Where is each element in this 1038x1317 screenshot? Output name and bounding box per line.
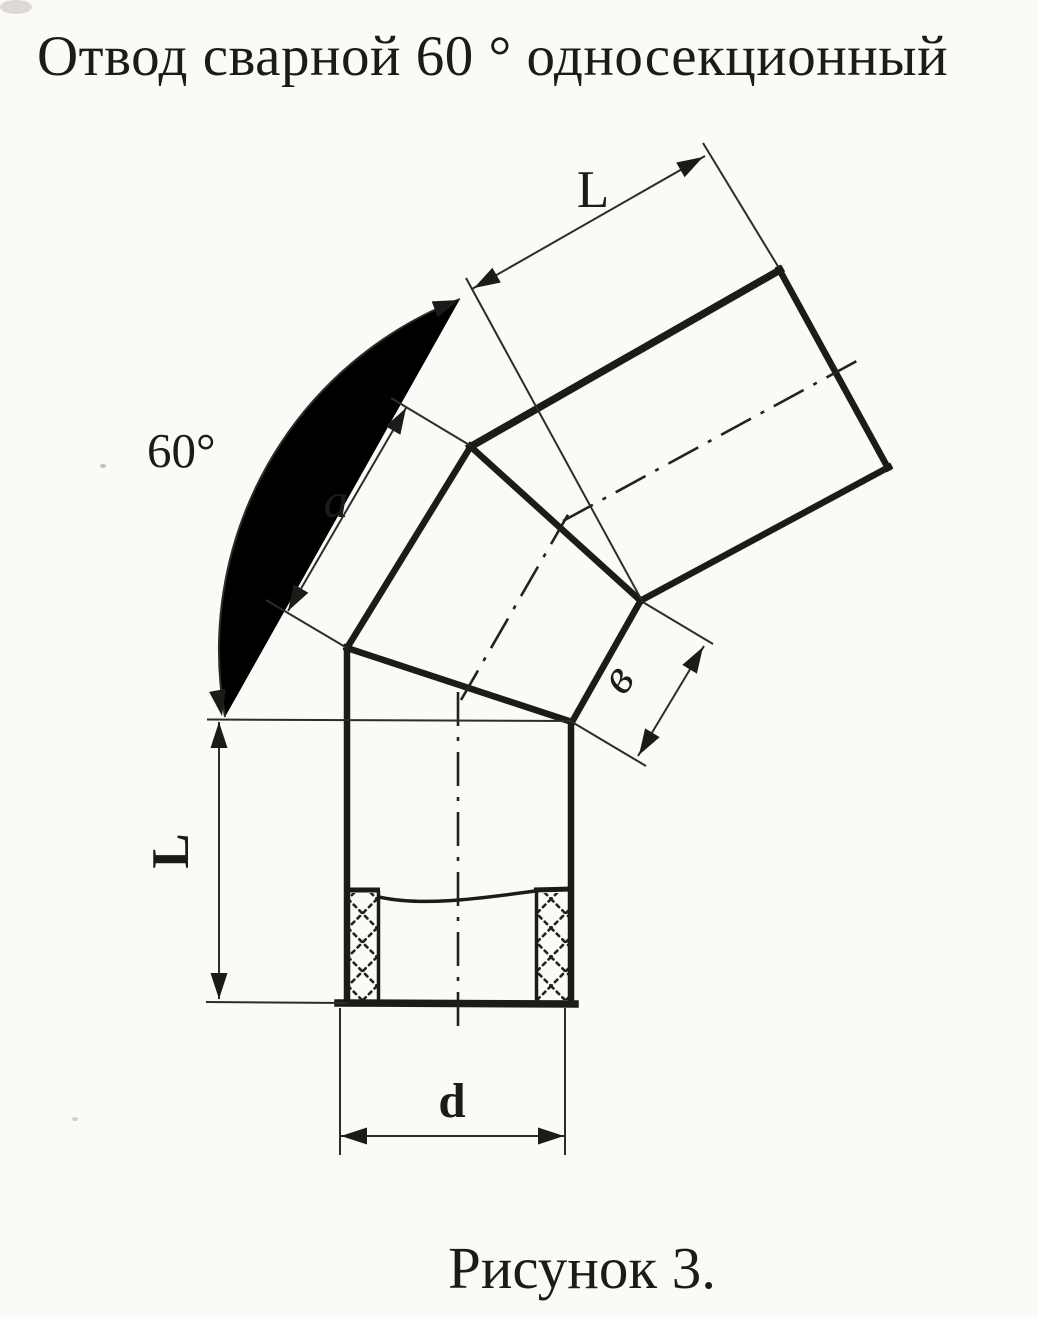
extension-line — [206, 1002, 347, 1003]
lower-weld-seam — [347, 648, 572, 722]
label-bend-angle: 60° — [147, 423, 216, 478]
dimension-bend-angle: 60° — [147, 292, 462, 717]
scan-speck — [72, 1117, 78, 1121]
horizontal-reference-line — [207, 720, 572, 722]
label-upper-length: L — [577, 161, 609, 219]
right-hatch-area — [538, 893, 568, 1000]
pipe-outline — [338, 269, 889, 1004]
label-lower-length: L — [142, 833, 200, 868]
scan-smudge — [0, 0, 32, 14]
extension-line — [703, 143, 779, 268]
upper-pipe-centerline — [563, 356, 866, 521]
label-bore-diameter: d — [438, 1073, 465, 1128]
label-section-long-side: a — [324, 473, 349, 528]
page-title: Отвод сварной 60 ° односекционный — [37, 25, 948, 88]
arrowhead — [211, 722, 228, 748]
scan-artifacts — [0, 0, 106, 1121]
arrowhead — [470, 268, 501, 296]
centerlines — [458, 356, 866, 1026]
lower-pipe-bottom-edge — [338, 1003, 575, 1004]
extension-line — [572, 722, 646, 766]
arrowhead — [682, 643, 710, 674]
extension-line — [641, 601, 713, 644]
right-hatch-cap — [534, 889, 572, 890]
middle-section-centerline — [461, 506, 573, 700]
arrowhead — [211, 973, 228, 999]
upper-pipe-top-edge — [470, 270, 780, 447]
upper-weld-seam — [470, 446, 641, 601]
scan-speck — [100, 464, 106, 468]
dimension-upper-length: L — [466, 143, 779, 599]
arrowhead — [538, 1128, 564, 1145]
scanned-page: Отвод сварной 60 ° односекционный — [0, 0, 1038, 1317]
arrowhead — [676, 150, 707, 178]
dimension-bore-diameter: d — [340, 1008, 565, 1155]
extension-line — [266, 600, 347, 648]
label-section-short-side: в — [588, 654, 645, 703]
arrowhead — [341, 1128, 367, 1145]
elbow-technical-drawing: Отвод сварной 60 ° односекционный — [0, 0, 1038, 1317]
left-hatch-area — [349, 893, 377, 1000]
upper-pipe-end-face — [779, 269, 888, 468]
arrowhead — [632, 728, 660, 759]
upper-pipe-bottom-edge — [640, 467, 889, 601]
figure-caption: Рисунок 3. — [448, 1235, 716, 1301]
